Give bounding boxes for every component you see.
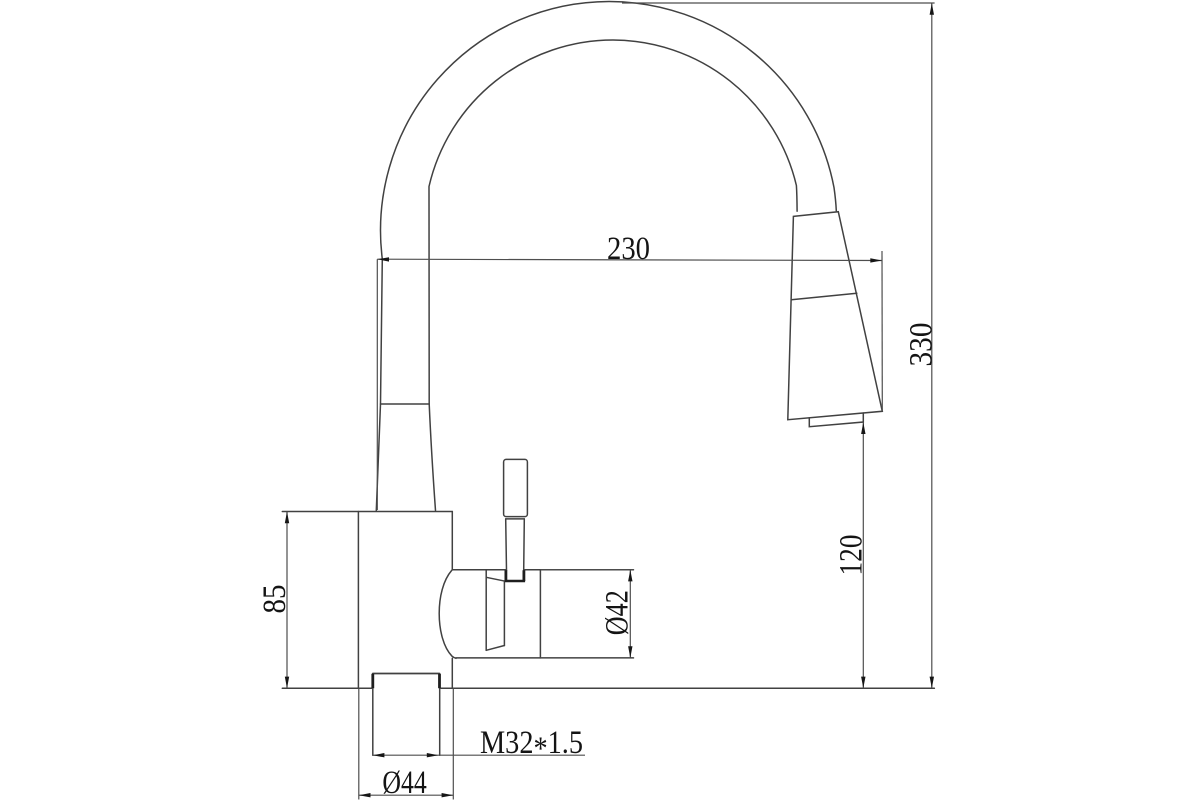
svg-text:330: 330 <box>903 323 939 367</box>
svg-text:Ø44: Ø44 <box>382 765 426 800</box>
svg-text:120: 120 <box>834 535 870 576</box>
svg-text:Ø42: Ø42 <box>599 590 635 635</box>
svg-text:230: 230 <box>607 231 650 267</box>
svg-text:M32*1.5: M32*1.5 <box>480 725 583 767</box>
svg-text:85: 85 <box>257 585 293 614</box>
